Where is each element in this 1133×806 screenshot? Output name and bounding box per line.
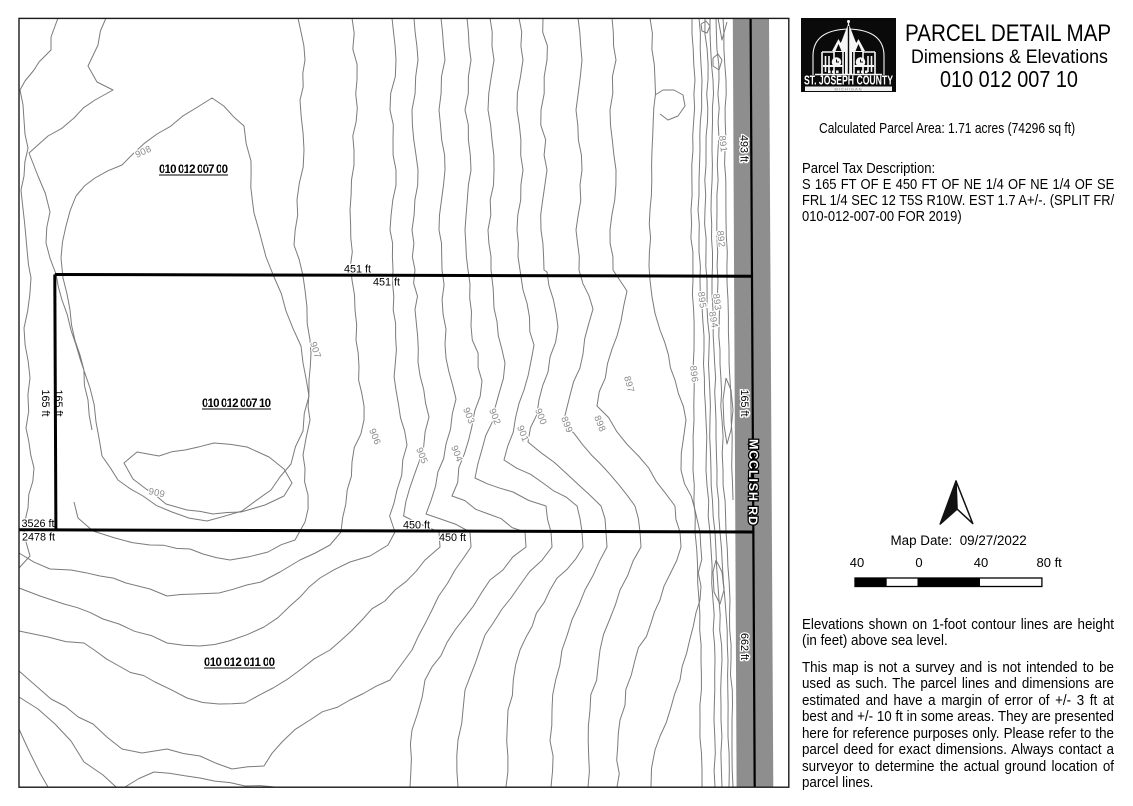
svg-text:907: 907	[307, 341, 323, 360]
svg-text:MCCLISH RD: MCCLISH RD	[746, 439, 761, 525]
svg-text:891: 891	[716, 135, 729, 153]
svg-text:165 ft: 165 ft	[39, 390, 51, 417]
svg-text:MICHIGAN: MICHIGAN	[835, 86, 863, 91]
svg-text:010 012 007 00: 010 012 007 00	[159, 164, 228, 176]
svg-text:909: 909	[147, 486, 166, 500]
svg-text:493 ft: 493 ft	[738, 135, 750, 162]
svg-text:902: 902	[486, 407, 502, 427]
svg-text:451 ft: 451 ft	[373, 277, 400, 289]
svg-text:010 012 011 00: 010 012 011 00	[204, 657, 275, 669]
svg-text:2478 ft: 2478 ft	[22, 532, 55, 544]
svg-text:897: 897	[621, 375, 636, 394]
svg-text:893: 893	[710, 293, 723, 311]
svg-text:895: 895	[695, 291, 708, 309]
svg-text:892: 892	[714, 230, 727, 248]
svg-text:451 ft: 451 ft	[344, 264, 371, 276]
svg-text:165 ft: 165 ft	[738, 390, 750, 417]
svg-text:450 ft: 450 ft	[439, 532, 466, 544]
svg-text:ST. JOSEPH COUNTY: ST. JOSEPH COUNTY	[804, 72, 893, 87]
svg-text:3526 ft: 3526 ft	[22, 518, 55, 530]
svg-text:905: 905	[413, 446, 429, 466]
svg-text:010 012 007 10: 010 012 007 10	[202, 398, 271, 410]
svg-text:908: 908	[134, 144, 154, 161]
svg-text:662 ft: 662 ft	[738, 633, 750, 660]
svg-text:903: 903	[460, 406, 476, 426]
svg-text:900: 900	[532, 407, 548, 427]
svg-text:896: 896	[687, 365, 700, 383]
svg-text:906: 906	[366, 427, 382, 447]
svg-text:904: 904	[448, 444, 464, 464]
svg-text:898: 898	[591, 414, 607, 434]
